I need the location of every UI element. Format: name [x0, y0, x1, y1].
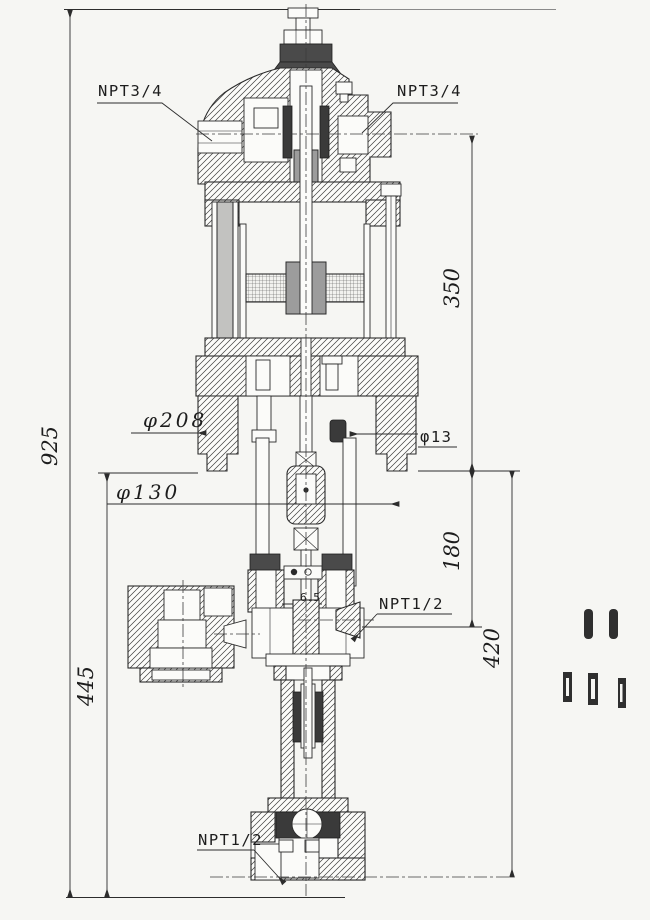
finish-mark-label: 6.5	[300, 591, 320, 604]
stamp-marks	[563, 609, 626, 708]
dim-420-label: 420	[480, 628, 504, 669]
valve-seal-right	[320, 106, 329, 158]
tube-wall-left	[281, 680, 294, 808]
dim-350-label: 350	[440, 268, 464, 308]
flange-skirt-right	[376, 396, 416, 471]
dim-dia13-label: φ13	[420, 428, 453, 446]
tube-wall-right	[322, 680, 335, 808]
engineering-drawing-canvas: 925 445 350 180 420 φ208 φ130 φ13 NPT3/4…	[0, 0, 650, 920]
pump-tube	[274, 666, 342, 808]
air-valve-head	[198, 68, 391, 188]
stamp-pin	[609, 609, 618, 639]
drawing-sheet: 925 445 350 180 420 φ208 φ130 φ13 NPT3/4…	[0, 0, 650, 920]
port-label-top-left: NPT3/4	[98, 82, 163, 100]
stamp-pin	[584, 609, 593, 639]
stud-cap-left	[250, 554, 280, 570]
port-label-bottom: NPT1/2	[198, 831, 263, 849]
stud-cap-right	[322, 554, 352, 570]
inlet-chamber	[255, 844, 281, 880]
valve-seal-left	[283, 106, 292, 158]
dim-dia208-label: φ208	[143, 408, 207, 432]
port-label-top-right: NPT3/4	[397, 82, 462, 100]
port-bore-left	[198, 121, 242, 153]
dim-dia130-label: φ130	[116, 480, 180, 504]
cylinder-wall-left	[240, 224, 246, 340]
dim-925-label: 925	[38, 426, 62, 466]
dim-180-label: 180	[440, 531, 464, 571]
port-bore-right	[338, 116, 368, 154]
mounting-flange	[198, 396, 416, 471]
cylinder-wall-right	[364, 224, 370, 340]
foot-valve	[251, 798, 365, 880]
tie-bolt-head	[381, 184, 401, 196]
leader-npt34-left	[97, 103, 212, 141]
detail-view	[128, 580, 260, 690]
port-label-mid-right: NPT1/2	[379, 595, 444, 613]
dim-445-label: 445	[74, 666, 98, 707]
